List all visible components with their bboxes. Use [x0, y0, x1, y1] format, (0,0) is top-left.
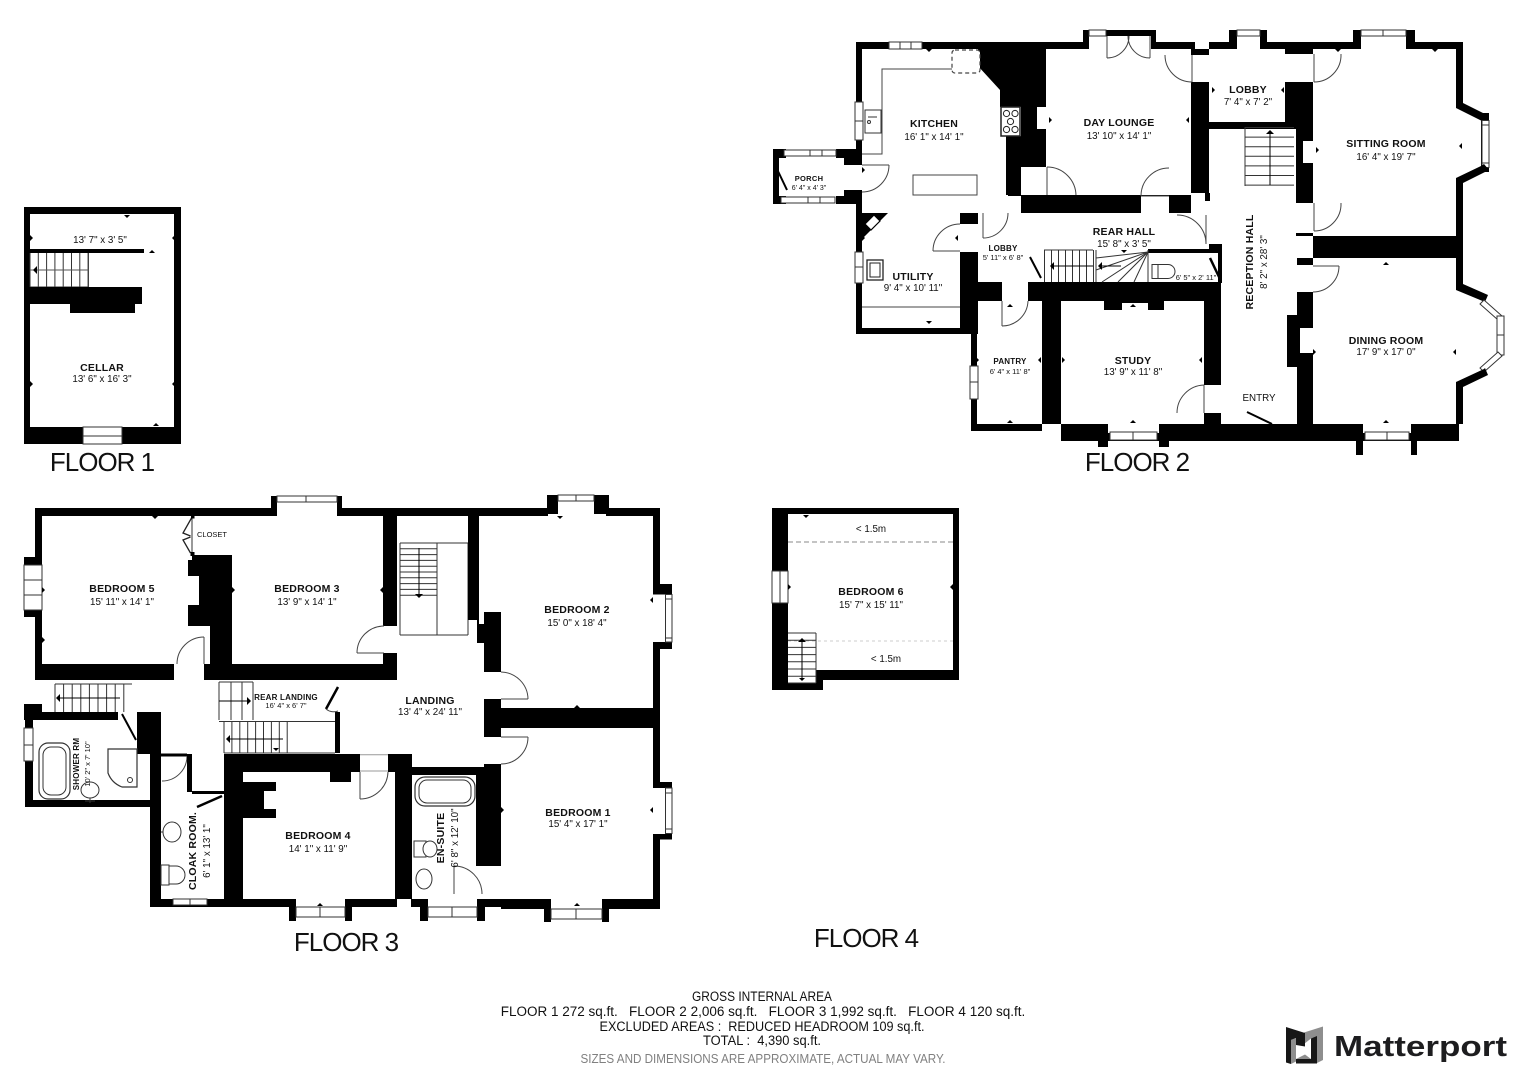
- svg-text:ENTRY: ENTRY: [1242, 393, 1275, 404]
- svg-text:FLOOR 1 272 sq.ft. FLOOR 2 2: FLOOR 1 272 sq.ft. FLOOR 2 2,006 sq.ft. …: [501, 1004, 1025, 1019]
- svg-text:BEDROOM 3: BEDROOM 3: [274, 583, 339, 595]
- svg-text:LOBBY: LOBBY: [989, 244, 1018, 253]
- svg-text:< 1.5m: < 1.5m: [856, 524, 886, 535]
- svg-text:KITCHEN: KITCHEN: [910, 118, 958, 130]
- svg-text:Matterport: Matterport: [1334, 1031, 1507, 1063]
- svg-text:16' 4" x 19' 7": 16' 4" x 19' 7": [1356, 152, 1416, 163]
- svg-text:8' 2" x 28' 3": 8' 2" x 28' 3": [1259, 235, 1270, 289]
- svg-text:FLOOR 3: FLOOR 3: [294, 927, 399, 957]
- svg-text:6' 1" x 13' 1": 6' 1" x 13' 1": [202, 824, 213, 878]
- svg-text:BEDROOM 2: BEDROOM 2: [544, 604, 609, 616]
- svg-text:BEDROOM 1: BEDROOM 1: [545, 807, 610, 819]
- svg-text:FLOOR 1: FLOOR 1: [50, 447, 155, 477]
- svg-text:17' 9" x 17' 0": 17' 9" x 17' 0": [1356, 347, 1416, 358]
- svg-text:15' 11" x 14' 1": 15' 11" x 14' 1": [90, 597, 154, 608]
- svg-text:5' 11" x 6' 8": 5' 11" x 6' 8": [983, 253, 1024, 262]
- svg-text:13' 10" x 14' 1": 13' 10" x 14' 1": [1087, 131, 1152, 142]
- svg-text:14' 1" x 11' 9": 14' 1" x 11' 9": [289, 844, 348, 855]
- svg-text:LOBBY: LOBBY: [1229, 84, 1267, 96]
- svg-text:6' 8" x 12' 10": 6' 8" x 12' 10": [450, 808, 461, 868]
- svg-text:PORCH: PORCH: [795, 174, 824, 183]
- svg-text:CELLAR: CELLAR: [80, 362, 124, 374]
- svg-text:PANTRY: PANTRY: [993, 357, 1027, 366]
- svg-text:DAY LOUNGE: DAY LOUNGE: [1084, 117, 1155, 129]
- svg-text:EN-SUITE: EN-SUITE: [435, 813, 447, 864]
- svg-text:13' 4" x 24' 11": 13' 4" x 24' 11": [398, 707, 462, 718]
- svg-text:< 1.5m: < 1.5m: [871, 654, 901, 665]
- svg-text:7' 4" x 7' 2": 7' 4" x 7' 2": [1224, 97, 1273, 108]
- svg-text:6' 4" x 11' 8": 6' 4" x 11' 8": [990, 367, 1031, 376]
- svg-text:16' 4" x 6' 7": 16' 4" x 6' 7": [265, 701, 306, 710]
- svg-text:TOTAL : 4,390 sq.ft.: TOTAL : 4,390 sq.ft.: [703, 1033, 821, 1048]
- svg-text:DINING ROOM: DINING ROOM: [1349, 335, 1424, 347]
- svg-text:SIZES AND DIMENSIONS ARE APPRO: SIZES AND DIMENSIONS ARE APPROXIMATE, AC…: [581, 1052, 946, 1066]
- svg-text:EXCLUDED AREAS : REDUCED HEAD: EXCLUDED AREAS : REDUCED HEADROOM 109 sq…: [600, 1019, 925, 1034]
- svg-text:BEDROOM 5: BEDROOM 5: [89, 583, 154, 595]
- svg-text:6' 5" x 2' 11": 6' 5" x 2' 11": [1176, 273, 1217, 282]
- svg-text:CLOSET: CLOSET: [197, 530, 227, 539]
- svg-text:REAR HALL: REAR HALL: [1093, 226, 1156, 238]
- svg-text:10' 2" x 7' 10": 10' 2" x 7' 10": [83, 741, 92, 787]
- svg-text:STUDY: STUDY: [1115, 355, 1152, 367]
- svg-text:BEDROOM 4: BEDROOM 4: [285, 830, 350, 842]
- svg-text:SITTING ROOM: SITTING ROOM: [1346, 138, 1425, 150]
- svg-text:SHOWER RM: SHOWER RM: [72, 738, 81, 791]
- svg-text:LANDING: LANDING: [405, 695, 454, 707]
- svg-text:FLOOR 2: FLOOR 2: [1085, 447, 1190, 477]
- svg-text:15' 0" x 18' 4": 15' 0" x 18' 4": [547, 618, 607, 629]
- svg-text:13' 9" x 11' 8": 13' 9" x 11' 8": [1104, 367, 1163, 378]
- svg-text:BEDROOM 6: BEDROOM 6: [838, 586, 903, 598]
- svg-text:13' 9" x 14' 1": 13' 9" x 14' 1": [277, 597, 337, 608]
- svg-text:UTILITY: UTILITY: [892, 271, 933, 283]
- svg-text:13' 6" x 16' 3": 13' 6" x 16' 3": [72, 374, 132, 385]
- svg-text:15' 7" x 15' 11": 15' 7" x 15' 11": [839, 600, 903, 611]
- svg-text:FLOOR 4: FLOOR 4: [814, 923, 919, 953]
- svg-text:RECEPTION HALL: RECEPTION HALL: [1244, 214, 1256, 309]
- svg-text:GROSS INTERNAL AREA: GROSS INTERNAL AREA: [692, 989, 832, 1004]
- svg-text:13' 7" x 3' 5": 13' 7" x 3' 5": [73, 235, 127, 246]
- svg-text:16' 1" x 14' 1": 16' 1" x 14' 1": [904, 132, 964, 143]
- svg-text:6' 4" x 4' 3": 6' 4" x 4' 3": [792, 185, 827, 192]
- svg-text:15' 4" x 17' 1": 15' 4" x 17' 1": [548, 819, 608, 830]
- svg-text:9' 4" x 10' 11": 9' 4" x 10' 11": [884, 283, 943, 294]
- svg-text:15' 8" x 3' 5": 15' 8" x 3' 5": [1097, 239, 1151, 250]
- svg-text:CLOAK ROOM.: CLOAK ROOM.: [187, 812, 199, 890]
